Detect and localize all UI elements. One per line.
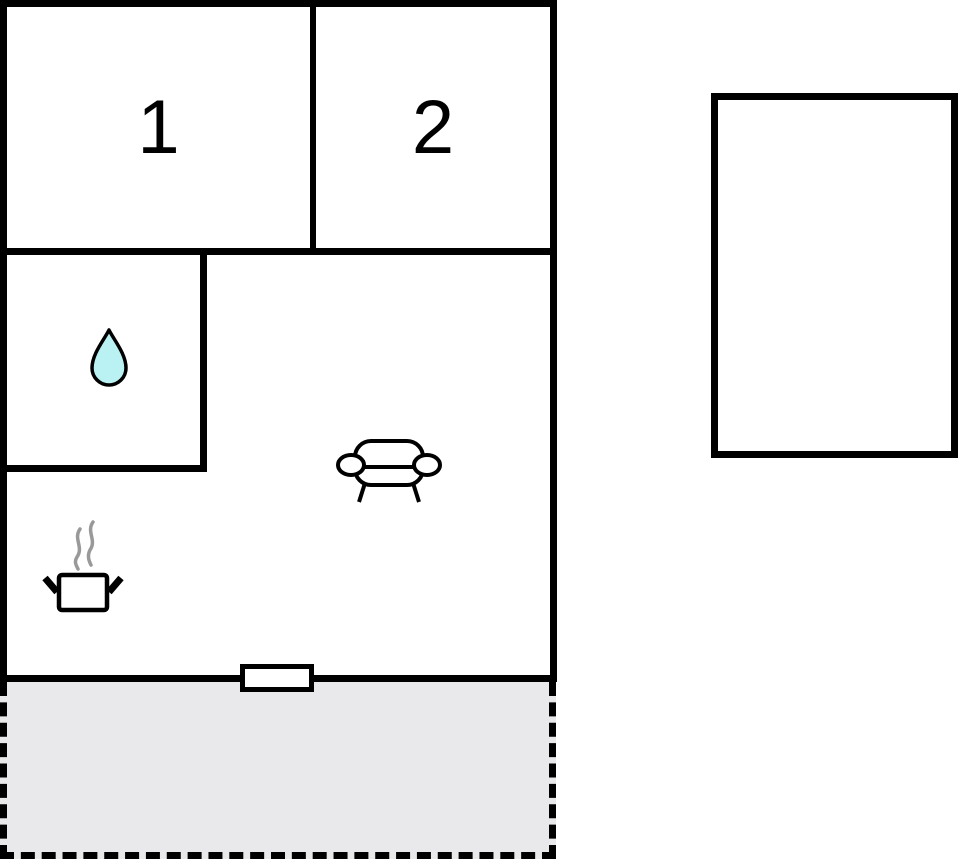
annex-building-outline: [711, 93, 958, 458]
pot-body: [59, 575, 107, 610]
wall-bathroom-right: [200, 248, 207, 472]
steam-line-left: [75, 529, 80, 569]
main-building-outline: 1 2: [0, 0, 557, 682]
water-drop-shape: [92, 330, 126, 385]
sofa-icon: [336, 438, 442, 504]
sofa-right-leg: [413, 483, 419, 502]
pot-left-handle: [45, 578, 57, 592]
water-drop-icon: [89, 327, 129, 387]
sofa-left-leg: [359, 483, 365, 502]
room-2-label: 2: [316, 7, 550, 248]
sofa-right-armrest: [414, 455, 440, 475]
pot-right-handle: [109, 578, 121, 592]
floor-plan: 1 2: [0, 0, 960, 862]
sofa-left-armrest: [338, 455, 364, 475]
steam-line-right: [88, 522, 93, 565]
room-1-label: 1: [7, 7, 310, 248]
steaming-pot-icon: [40, 512, 126, 614]
terrace-area: [0, 682, 556, 859]
entrance-door-marker: [240, 664, 314, 692]
wall-bathroom-bottom: [7, 465, 207, 472]
wall-rooms-bottom: [7, 248, 550, 255]
